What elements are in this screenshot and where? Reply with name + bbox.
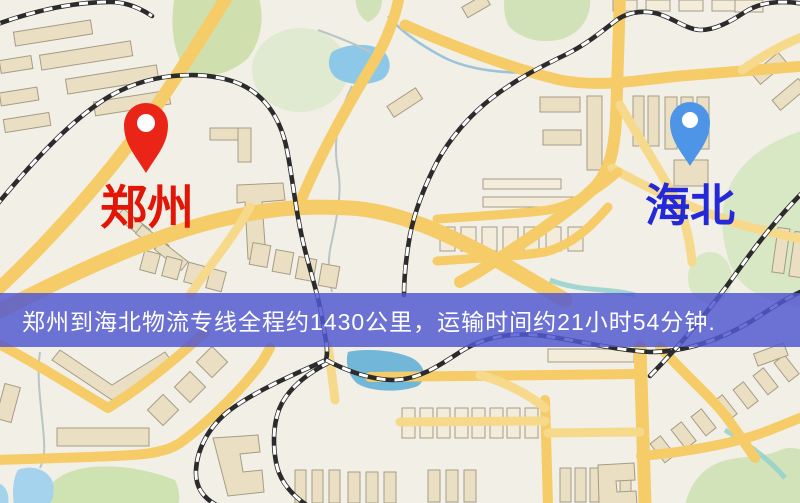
map-canvas: 郑州 海北 xyxy=(0,0,800,503)
origin-marker-label: 郑州 xyxy=(100,183,194,235)
pin-hole xyxy=(137,114,155,132)
road xyxy=(545,400,548,503)
road xyxy=(400,421,545,422)
map-screenshot: 郑州 海北 郑州到海北物流专线全程约1430公里，运输时间约21小时54分钟. xyxy=(0,0,800,503)
destination-marker-label: 海北 xyxy=(645,181,735,231)
pin-hole xyxy=(682,112,698,128)
route-info-text: 郑州到海北物流专线全程约1430公里，运输时间约21小时54分钟. xyxy=(22,303,716,337)
route-info-banner: 郑州到海北物流专线全程约1430公里，运输时间约21小时54分钟. xyxy=(0,293,800,347)
road xyxy=(548,432,640,433)
